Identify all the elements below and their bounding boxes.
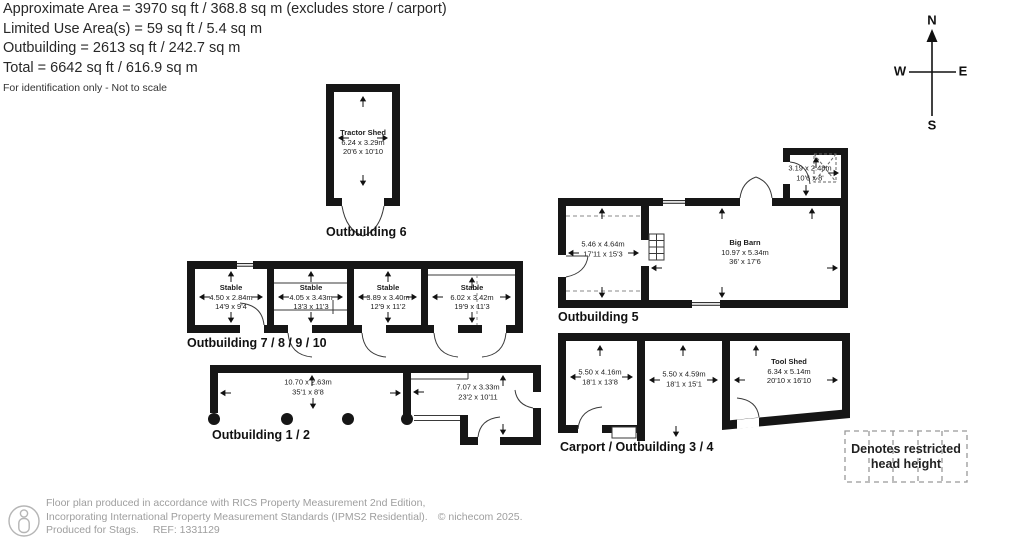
room-dim-ft: 18'1 x 15'1	[662, 379, 705, 389]
window	[692, 300, 720, 308]
room-dim-ft: 20'6 x 10'10	[340, 147, 386, 157]
room-label-big-barn: Big Barn 10.97 x 5.34m 36' x 17'6	[721, 238, 769, 267]
support-posts	[208, 413, 413, 425]
person-icon	[9, 506, 39, 536]
approximate-area-line: Approximate Area = 3970 sq ft / 368.8 sq…	[3, 0, 447, 20]
room-dim-ft: 17'11 x 15'3	[581, 249, 624, 259]
room-dim-m: 5.50 x 4.59m	[662, 370, 705, 380]
door-arc	[737, 398, 759, 417]
window	[663, 198, 685, 206]
room-dim-m: 3.19 x 2.48m	[788, 164, 831, 174]
room-dim-ft: 36' x 17'6	[721, 257, 769, 267]
stairs	[649, 234, 664, 260]
area-summary: Approximate Area = 3970 sq ft / 368.8 sq…	[3, 0, 447, 95]
disclaimer: For identification only - Not to scale	[3, 82, 447, 95]
room-label-stable-2: Stable 4.05 x 3.43m 13'3 x 11'3	[289, 283, 332, 312]
room-label-tool-shed: Tool Shed 6.34 x 5.14m 20'10 x 16'10	[767, 357, 811, 386]
room-name: Tool Shed	[767, 357, 811, 367]
total-area-line: Total = 6642 sq ft / 616.9 sq m	[3, 59, 447, 79]
room-dim-ft: 14'9 x 9'4	[209, 302, 252, 312]
legend-line-2: head height	[851, 457, 961, 472]
window	[237, 261, 253, 269]
room-label-stable-1: Stable 4.50 x 2.84m 14'9 x 9'4	[209, 283, 252, 312]
room-dim-m: 5.46 x 4.64m	[581, 240, 624, 250]
footer-line-3: Produced for Stags.REF: 1331129	[46, 524, 523, 538]
room-dim-m: 6.02 x 3.42m	[450, 292, 493, 302]
footer-copyright: © nichecom 2025.	[438, 511, 523, 523]
room-dim-ft: 23'2 x 10'11	[456, 392, 499, 402]
room-dim-m: 6.34 x 5.14m	[767, 366, 811, 376]
room-label-ob12-room: 7.07 x 3.33m 23'2 x 10'11	[456, 383, 499, 402]
room-label-cp-room1: 5.50 x 4.16m 18'1 x 13'8	[578, 368, 621, 387]
outbuilding-area-line: Outbuilding = 2613 sq ft / 242.7 sq m	[3, 39, 447, 59]
room-label-stable-3: Stable 3.89 x 3.40m 12'9 x 11'2	[366, 283, 409, 312]
room-dim-m: 3.89 x 3.40m	[366, 292, 409, 302]
floor-plan-canvas: Approximate Area = 3970 sq ft / 368.8 sq…	[0, 0, 1024, 545]
room-dim-m: 4.50 x 2.84m	[209, 292, 252, 302]
room-dim-ft: 19'9 x 11'3	[450, 302, 493, 312]
room-dim-ft: 12'9 x 11'2	[366, 302, 409, 312]
room-name: Big Barn	[721, 238, 769, 248]
room-label-tractor-shed: Tractor Shed 6.24 x 3.29m 20'6 x 10'10	[340, 128, 386, 157]
room-dim-m: 4.05 x 3.43m	[289, 292, 332, 302]
window	[414, 416, 460, 421]
room-label-ob5-store: 3.19 x 2.48m 10'6 x 8'	[788, 164, 831, 183]
room-dim-m: 10.97 x 5.34m	[721, 247, 769, 257]
internal-lines	[411, 373, 468, 379]
compass-west-label: W	[894, 64, 906, 79]
footer-line-1: Floor plan produced in accordance with R…	[46, 497, 523, 511]
legend-line-1: Denotes restricted	[851, 442, 961, 457]
label-outbuilding-7-8-9-10: Outbuilding 7 / 8 / 9 / 10	[187, 336, 327, 350]
legend-restricted-head-height: Denotes restricted head height	[851, 442, 961, 472]
room-dim-ft: 10'6 x 8'	[788, 173, 831, 183]
room-dim-m: 7.07 x 3.33m	[456, 383, 499, 393]
room-name: Stable	[289, 283, 332, 293]
step	[612, 427, 636, 438]
room-name: Stable	[209, 283, 252, 293]
compass-north-label: N	[927, 13, 936, 28]
compass-rose	[909, 29, 956, 116]
label-outbuilding-1-2: Outbuilding 1 / 2	[212, 428, 310, 442]
room-label-stable-4: Stable 6.02 x 3.42m 19'9 x 11'3	[450, 283, 493, 312]
room-name: Stable	[366, 283, 409, 293]
label-outbuilding-6: Outbuilding 6	[326, 225, 407, 239]
compass-east-label: E	[959, 64, 968, 79]
room-dim-ft: 18'1 x 13'8	[578, 377, 621, 387]
label-carport-outbuilding-3-4: Carport / Outbuilding 3 / 4	[560, 440, 713, 454]
room-dim-m: 6.24 x 3.29m	[340, 137, 386, 147]
limited-use-line: Limited Use Area(s) = 59 sq ft / 5.4 sq …	[3, 20, 447, 40]
footer-ref: REF: 1331129	[153, 524, 220, 536]
footer-line-2: Incorporating International Property Mea…	[46, 511, 523, 525]
room-label-open-bay: 10.70 x 2.63m 35'1 x 8'8	[284, 378, 332, 397]
footer-produced-for: Produced for Stags.	[46, 524, 139, 536]
room-dim-m: 10.70 x 2.63m	[284, 378, 332, 388]
room-label-carport: 5.50 x 4.59m 18'1 x 15'1	[662, 370, 705, 389]
room-label-ob5-left-room: 5.46 x 4.64m 17'11 x 15'3	[581, 240, 624, 259]
room-name: Tractor Shed	[340, 128, 386, 138]
label-outbuilding-5: Outbuilding 5	[558, 310, 639, 324]
room-dim-ft: 20'10 x 16'10	[767, 376, 811, 386]
compass-south-label: S	[928, 118, 937, 133]
outbuilding-6-plan	[326, 84, 400, 236]
footer-ipms-text: Incorporating International Property Mea…	[46, 511, 428, 523]
room-dim-m: 5.50 x 4.16m	[578, 368, 621, 378]
double-door-arcs	[740, 177, 772, 206]
room-dim-ft: 13'3 x 11'3	[289, 302, 332, 312]
footer: Floor plan produced in accordance with R…	[46, 497, 523, 538]
room-name: Stable	[450, 283, 493, 293]
room-dim-ft: 35'1 x 8'8	[284, 387, 332, 397]
